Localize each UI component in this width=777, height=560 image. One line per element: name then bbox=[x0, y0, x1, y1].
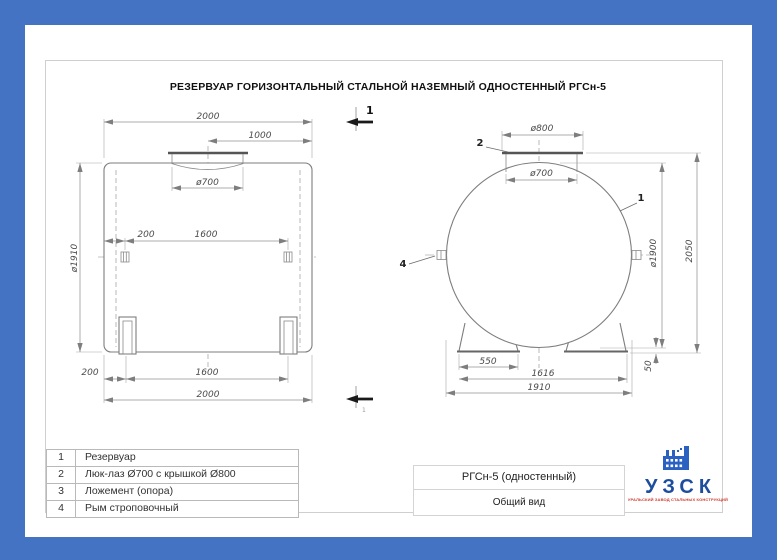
callout-leader-manhole bbox=[486, 147, 508, 152]
factory-icon bbox=[661, 446, 695, 472]
saddle-side-right bbox=[280, 317, 297, 354]
parts-table: 1 Резервуар 2 Люк-лаз Ø700 с крышкой Ø80… bbox=[46, 449, 299, 518]
part-number: 4 bbox=[47, 501, 76, 517]
title-block-view: Общий вид bbox=[414, 490, 624, 515]
title-block: РГСн-5 (одностенный) Общий вид bbox=[413, 465, 625, 516]
dim-label-support-base: 550 bbox=[479, 357, 496, 367]
company-logo: УЗСК УРАЛЬСКИЙ ЗАВОД СТАЛЬНЫХ КОНСТРУКЦИ… bbox=[626, 446, 730, 503]
table-row: 2 Люк-лаз Ø700 с крышкой Ø800 bbox=[47, 467, 299, 484]
callout-eye: 4 bbox=[400, 259, 407, 270]
part-number: 3 bbox=[47, 484, 76, 500]
part-name: Ложемент (опора) bbox=[76, 484, 299, 500]
callout-shell: 1 bbox=[638, 193, 645, 204]
callout-leader-eye bbox=[409, 256, 435, 264]
logo-abbr: УЗСК bbox=[631, 477, 730, 497]
dim-label-side-half: 1000 bbox=[249, 131, 272, 141]
dim-label-side-shell-dia: ø1910 bbox=[70, 244, 80, 274]
section-marker-top: 1 bbox=[346, 104, 374, 131]
part-name: Резервуар bbox=[76, 450, 299, 466]
section-arrow-bottom bbox=[346, 395, 373, 403]
dim-label-clearance: 50 bbox=[644, 360, 654, 372]
part-number: 2 bbox=[47, 467, 76, 483]
dim-label-support-offset: 200 bbox=[81, 368, 98, 378]
section-label-bottom: 1 bbox=[362, 407, 366, 414]
blueprint-page: РЕЗЕРВУАР ГОРИЗОНТАЛЬНЫЙ СТАЛЬНОЙ НАЗЕМН… bbox=[0, 0, 777, 560]
lifting-eye-side-right bbox=[284, 252, 292, 262]
logo-tagline: УРАЛЬСКИЙ ЗАВОД СТАЛЬНЫХ КОНСТРУКЦИЙ bbox=[626, 497, 730, 503]
tank-shell-end bbox=[447, 163, 632, 348]
dim-label-end-shell-dia: ø1900 bbox=[649, 239, 659, 269]
dim-label-eye-offset: 200 bbox=[137, 230, 154, 240]
table-row: 1 Резервуар bbox=[47, 450, 299, 467]
part-name: Рым строповочный bbox=[76, 501, 299, 517]
lifting-eye-side-left bbox=[121, 252, 129, 262]
section-marker-bottom: 1 bbox=[346, 386, 373, 414]
saddle-side-left bbox=[119, 317, 136, 354]
dim-label-end-manhole: ø700 bbox=[529, 169, 553, 179]
part-number: 1 bbox=[47, 450, 76, 466]
table-row: 3 Ложемент (опора) bbox=[47, 484, 299, 501]
lifting-eye-end-left bbox=[437, 251, 446, 260]
section-arrow-top bbox=[346, 118, 373, 126]
dim-label-base-length: 2000 bbox=[197, 390, 220, 400]
dim-label-end-width: 1910 bbox=[528, 383, 551, 393]
dim-label-height: 2050 bbox=[685, 239, 695, 262]
dim-label-eye-spacing: 1600 bbox=[195, 230, 218, 240]
part-name: Люк-лаз Ø700 с крышкой Ø800 bbox=[76, 467, 299, 483]
section-label-top: 1 bbox=[366, 104, 374, 117]
table-row: 4 Рым строповочный bbox=[47, 501, 299, 518]
callout-manhole: 2 bbox=[477, 138, 484, 149]
dim-label-support-span: 1616 bbox=[532, 369, 555, 379]
dim-label-cover: ø800 bbox=[530, 124, 554, 134]
dim-label-side-manhole: ø700 bbox=[195, 178, 219, 188]
end-view: ø800 ø700 550 1616 1910 ø1900 2050 50 2 … bbox=[400, 124, 701, 397]
callout-leader-shell bbox=[620, 203, 637, 211]
side-view: 2000 1000 ø700 ø1910 200 1600 200 1600 2… bbox=[70, 112, 318, 403]
lifting-eye-end-right bbox=[632, 251, 641, 260]
dim-label-support-spacing: 1600 bbox=[196, 368, 219, 378]
title-block-model: РГСн-5 (одностенный) bbox=[414, 466, 624, 490]
dim-label-side-length: 2000 bbox=[197, 112, 220, 122]
